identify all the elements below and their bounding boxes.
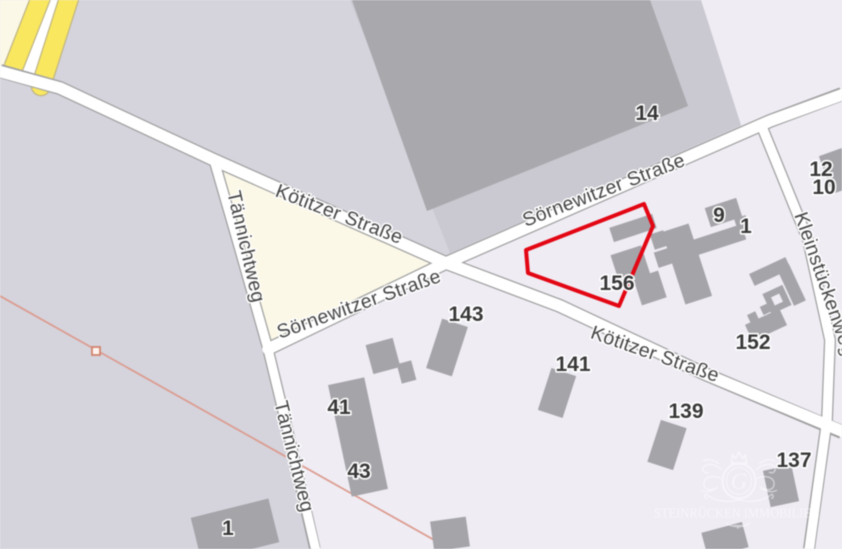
svg-text:137: 137 [776, 449, 811, 472]
svg-text:1: 1 [740, 215, 752, 238]
svg-text:143: 143 [448, 303, 483, 326]
svg-text:156: 156 [599, 272, 634, 295]
svg-text:STEINRÜCKEN IMMOBILIEN: STEINRÜCKEN IMMOBILIEN [654, 505, 820, 522]
svg-text:14: 14 [635, 102, 659, 125]
svg-text:41: 41 [327, 396, 351, 419]
svg-text:G: G [731, 469, 748, 494]
svg-text:141: 141 [555, 353, 590, 376]
svg-text:43: 43 [347, 460, 370, 483]
svg-text:1: 1 [222, 517, 234, 540]
svg-text:10: 10 [812, 176, 835, 199]
svg-text:9: 9 [713, 204, 725, 227]
svg-text:152: 152 [735, 331, 770, 354]
svg-text:139: 139 [668, 400, 703, 423]
